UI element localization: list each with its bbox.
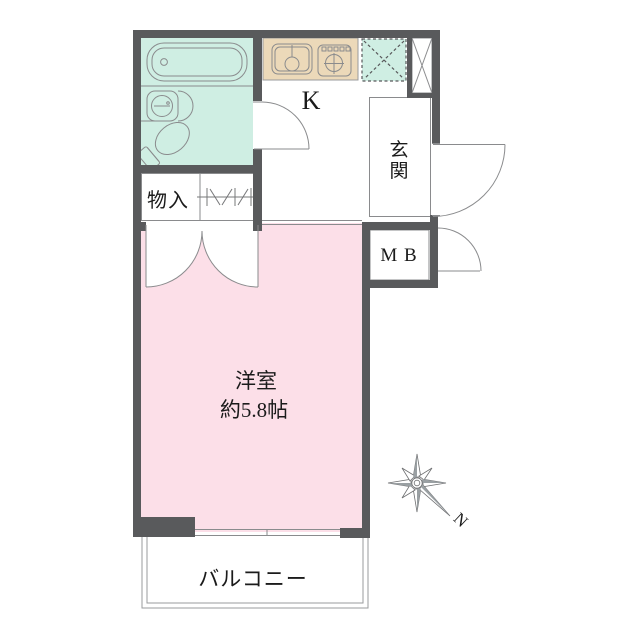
kitchen-label: K bbox=[302, 86, 321, 115]
entrance-label: 玄 関 bbox=[389, 139, 408, 182]
svg-text:関: 関 bbox=[389, 161, 408, 182]
storage-label: 物入 bbox=[147, 189, 189, 212]
meter-box-label: M B bbox=[380, 245, 417, 266]
balcony-label: バルコニー bbox=[198, 567, 308, 591]
svg-text:約5.8帖: 約5.8帖 bbox=[220, 398, 288, 422]
svg-text:玄: 玄 bbox=[389, 139, 408, 161]
svg-text:洋室: 洋室 bbox=[235, 369, 277, 393]
floor-plan: N K 玄 関 M B 物入 洋室 約5.8帖 バルコニー bbox=[0, 0, 640, 640]
bathroom-floor bbox=[141, 38, 253, 165]
